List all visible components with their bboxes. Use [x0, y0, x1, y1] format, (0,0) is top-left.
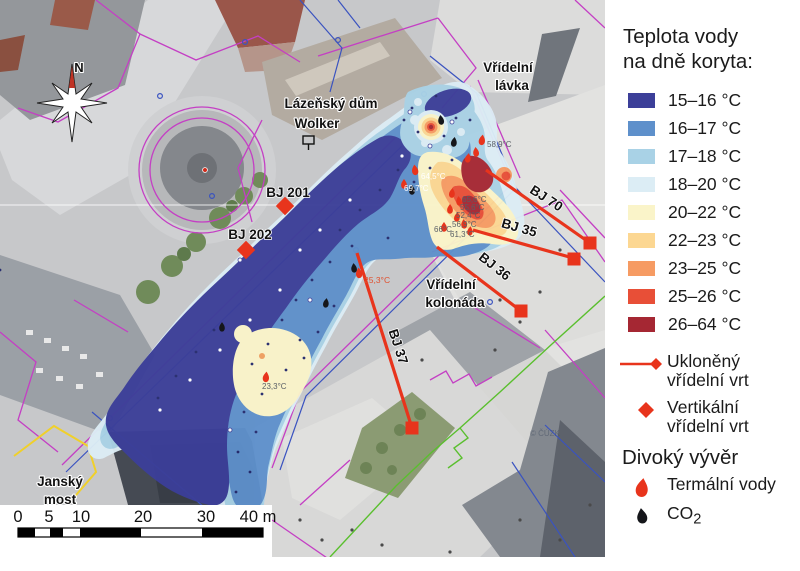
inclined-borehole-label-2: vřídelní vrt: [667, 371, 749, 390]
legend-title-line2: na dně koryta:: [623, 49, 753, 74]
legend-range-label: 20–22 °C: [668, 202, 741, 223]
label-lazensky-dum-1: Lázeňský dům: [284, 96, 377, 111]
color-swatch: [628, 233, 655, 248]
temp-reading: 58,9°C: [487, 140, 512, 149]
legend-title-line1: Teplota vody: [623, 24, 753, 49]
borehole-head-bj35: [568, 253, 581, 266]
legend-temperature-items: 15–16 °C 16–17 °C 17–18 °C 18–20 °C 20–2…: [628, 86, 741, 338]
scale-tick-20: 20: [134, 508, 152, 526]
color-swatch: [628, 317, 655, 332]
thermal-water-label: Termální vody: [667, 475, 776, 494]
label-jansky-most-1: Janský: [37, 474, 83, 489]
scale-tick-10: 10: [72, 508, 90, 526]
color-swatch: [628, 261, 655, 276]
legend-range-label: 16–17 °C: [668, 118, 741, 139]
legend-item: 26–64 °C: [628, 310, 741, 338]
vertical-borehole-label-2: vřídelní vrt: [667, 417, 749, 436]
legend-item: 18–20 °C: [628, 170, 741, 198]
label-vridelni-kolonada-2: kolonáda: [425, 295, 485, 310]
legend-item: 16–17 °C: [628, 114, 741, 142]
color-swatch: [628, 177, 655, 192]
co2-subscript: 2: [693, 512, 701, 528]
legend-item: 17–18 °C: [628, 142, 741, 170]
legend-range-label: 18–20 °C: [668, 174, 741, 195]
legend-range-label: 15–16 °C: [668, 90, 741, 111]
color-swatch: [628, 205, 655, 220]
legend-range-label: 25–26 °C: [668, 286, 741, 307]
temp-reading: 56,9°C: [452, 220, 477, 229]
legend-range-label: 26–64 °C: [668, 314, 741, 335]
inclined-borehole-label-1: Ukloněný: [667, 352, 749, 371]
temp-reading: 52,4°C: [456, 211, 481, 220]
temp-reading: 23,3°C: [262, 382, 287, 391]
legend-item: 23–25 °C: [628, 254, 741, 282]
temp-reading: 61,3°C: [450, 230, 475, 239]
scale-tick-5: 5: [44, 508, 53, 526]
borehole-head-bj36: [515, 305, 528, 318]
map-attribution: © ČÚZK: [530, 429, 561, 438]
legend-panel: Teplota vody na dně koryta: 15–16 °C 16–…: [610, 0, 800, 571]
legend-range-label: 22–23 °C: [668, 230, 741, 251]
label-lazensky-dum-2: Wolker: [295, 116, 341, 131]
co2-label: CO2: [667, 504, 701, 530]
co2-label-text: CO: [667, 503, 693, 523]
compass-north-label: N: [74, 60, 83, 75]
scale-bar-segments: [18, 528, 263, 537]
legend-item: 20–22 °C: [628, 198, 741, 226]
wild-spring-heading: Divoký vývěr: [622, 446, 738, 470]
vertical-borehole-icon: [618, 400, 666, 420]
label-vridelni-lavka-1: Vřídelní: [483, 60, 534, 75]
temp-reading: 69,7°C: [404, 184, 429, 193]
label-vridelni-lavka-2: lávka: [495, 78, 529, 93]
legend-item: 15–16 °C: [628, 86, 741, 114]
borehole-head-bj70: [584, 237, 597, 250]
label-bj201: BJ 201: [266, 185, 310, 200]
legend-title: Teplota vody na dně koryta:: [623, 24, 753, 74]
color-swatch: [628, 289, 655, 304]
label-bj202: BJ 202: [228, 227, 272, 242]
legend-item: 25–26 °C: [628, 282, 741, 310]
borehole-head-bj37: [406, 422, 419, 435]
scale-tick-0: 0: [13, 508, 22, 526]
color-swatch: [628, 121, 655, 136]
vertical-borehole-label-1: Vertikální: [667, 398, 749, 417]
label-vridelni-kolonada-1: Vřídelní: [426, 277, 477, 292]
inclined-borehole-icon: [618, 354, 666, 374]
color-swatch: [628, 149, 655, 164]
scale-tick-40: 40 m: [240, 508, 277, 526]
temp-reading: 64,5°C: [421, 172, 446, 181]
legend-range-label: 17–18 °C: [668, 146, 741, 167]
scale-tick-30: 30: [197, 508, 215, 526]
label-jansky-most-2: most: [44, 492, 77, 507]
temp-reading: 25,3°C: [364, 275, 390, 285]
scale-bar: 0 5 10 20 30 40 m: [13, 508, 276, 537]
legend-item: 22–23 °C: [628, 226, 741, 254]
legend-range-label: 23–25 °C: [668, 258, 741, 279]
color-swatch: [628, 93, 655, 108]
figure-thermal-map: N Vřídelní lávka Lázeňský dům Wolker Vří…: [0, 0, 800, 571]
